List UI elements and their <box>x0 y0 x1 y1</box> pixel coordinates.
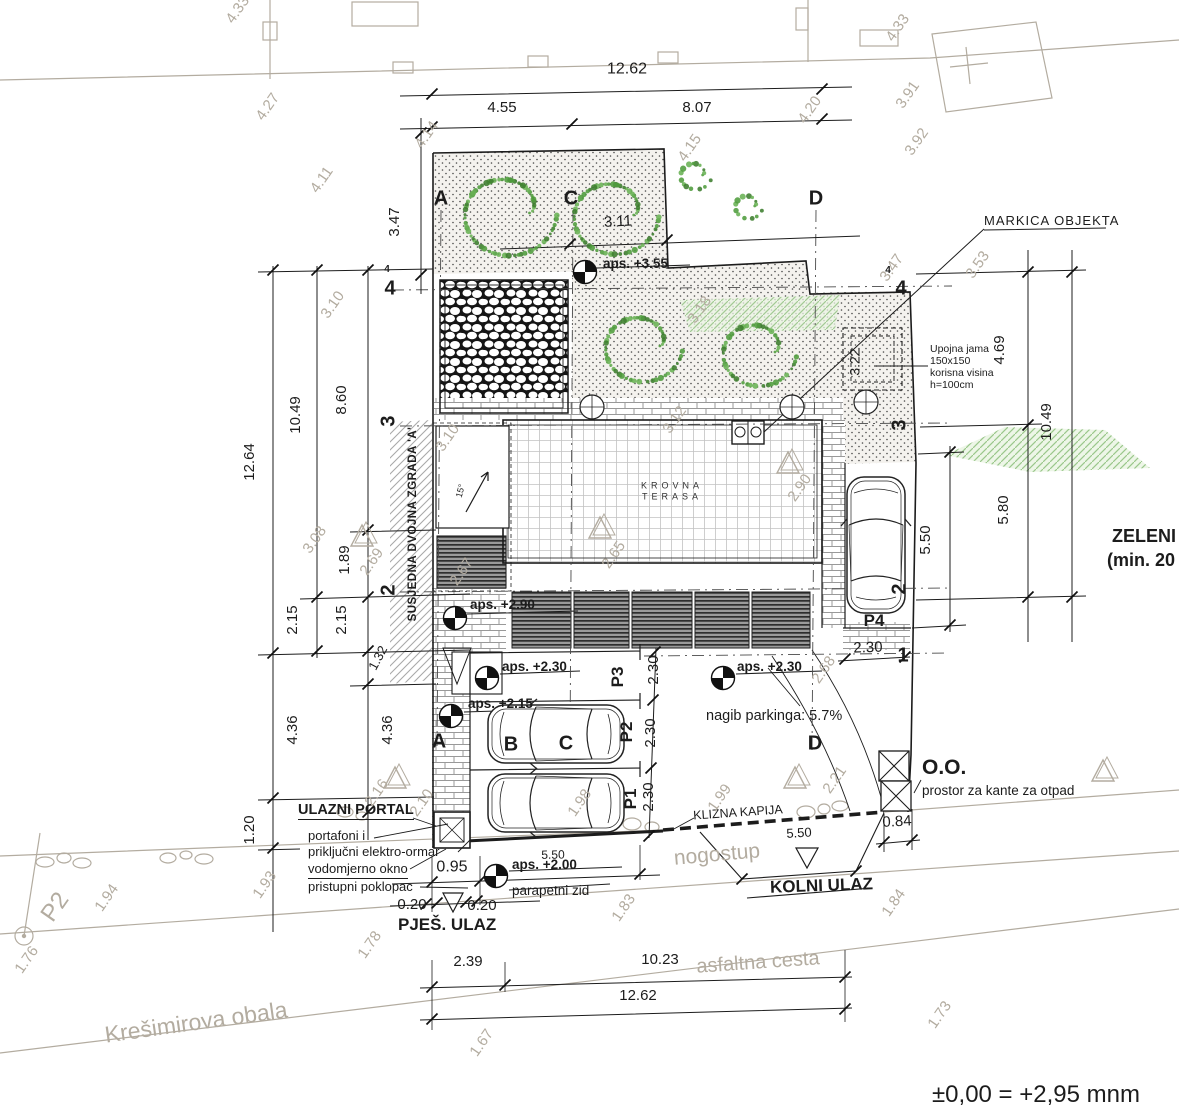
ulazni-portal-label: ULAZNI PORTAL <box>298 802 414 820</box>
zeleni-label: ZELENI <box>1112 526 1176 546</box>
grid-letter-a-top: A <box>434 189 448 210</box>
dimension-label: 10.49 <box>288 396 304 434</box>
manhole-icon <box>780 395 804 419</box>
level-label-230-right: aps. +2.30 <box>737 659 802 674</box>
brick-col-right <box>822 420 845 628</box>
dimension-label: 2.30 <box>853 640 883 657</box>
level-marker-icon <box>444 607 467 630</box>
parapetni-zid-label: parapetni zid <box>512 883 589 898</box>
level-marker-icon <box>574 261 597 284</box>
grid-number-3-right: 3 <box>890 419 911 430</box>
dimension-label: 4.36 <box>285 715 301 744</box>
dimension-label: 8.60 <box>334 385 350 414</box>
upojna-jama-label: 150x150 <box>930 356 970 368</box>
louver-seg <box>695 592 749 648</box>
car-icon <box>488 768 624 838</box>
grid-number-2-right: 2 <box>890 583 911 594</box>
louver-seg <box>752 592 810 648</box>
dimension-label: 3.22 <box>848 348 863 375</box>
grid-letter-b-bottom: B <box>504 735 518 756</box>
dimension-label: 2.15 <box>285 605 301 634</box>
dimension-label: 10.23 <box>641 952 679 968</box>
level-label-290: aps. +2.90 <box>470 597 535 612</box>
dimension-label: 2.15 <box>334 605 350 634</box>
dimension-label: 2.30 <box>641 782 657 811</box>
dimension-label: 0.20 <box>467 898 496 914</box>
krovna-terasa-label: KROVNA <box>641 481 703 490</box>
dimension-label: 0.84 <box>882 813 912 830</box>
site-plan-drawing <box>0 0 1179 1116</box>
dimension-label: 4.36 <box>380 715 396 744</box>
markica-objekta-label: MARKICA OBJEKTA <box>984 214 1119 229</box>
dimension-label: 8.07 <box>682 100 711 116</box>
grid-number-4-left: 4 <box>384 279 395 300</box>
zeleni-label: (min. 20 <box>1107 550 1175 570</box>
dimension-label: 0.20 <box>397 897 426 913</box>
dimension-label: 0.95 <box>436 860 467 877</box>
dimension-label: 2.30 <box>646 655 662 684</box>
grid-number-3-left: 3 <box>379 415 400 426</box>
vodomjerno-label: vodomjerno okno <box>308 862 408 879</box>
grid-number-2-left: 2 <box>379 584 400 595</box>
cobble-area <box>440 280 568 413</box>
dimension-label: 1.20 <box>242 815 258 844</box>
susjedna-zgrada-label: SUSJEDNA DVOJNA ZGRADA 'A' <box>407 427 419 622</box>
prikljucni-label: priključni elektro-ormar <box>308 845 439 860</box>
level-label-355: aps. +3.55 <box>603 256 668 271</box>
oo-subtitle-label: prostor za kante za otpad <box>922 783 1074 798</box>
grid-number-4s-left: 4 <box>384 265 390 276</box>
louver-seg <box>632 592 692 648</box>
louver-seg <box>574 592 629 648</box>
level-marker-icon <box>712 667 735 690</box>
upojna-jama-label: h=100cm <box>930 380 974 392</box>
grid-letter-c-bottom: C <box>559 734 573 755</box>
kolni-ulaz-label: KOLNI ULAZ <box>770 874 874 897</box>
portafoni-label: portafoni i <box>308 829 365 844</box>
parking-p2-label: P2 <box>618 722 636 743</box>
grid-number-1-right: 1 <box>897 646 908 667</box>
dimension-label: 5.50 <box>786 826 812 841</box>
grid-letter-c-top: C <box>564 189 578 210</box>
krovna-terasa-label: TERASA <box>642 492 702 501</box>
dimension-label: 2.30 <box>643 718 659 747</box>
dimension-label: 1.89 <box>337 545 353 574</box>
level-marker-icon <box>485 865 508 888</box>
survey-triangle-icon <box>1092 757 1118 781</box>
dimension-label: 3.11 <box>604 213 633 230</box>
level-label-230-left: aps. +2.30 <box>502 659 567 674</box>
grid-number-4-right: 4 <box>895 279 906 300</box>
level-label-215: aps. +2.15 <box>468 696 533 711</box>
dimension-label: 12.62 <box>619 988 657 1004</box>
brick-portal-top <box>434 790 470 812</box>
level-marker-icon <box>440 705 463 728</box>
upojna-jama-label: korisna visina <box>930 368 994 380</box>
parking-p4-label: P4 <box>864 612 885 630</box>
dimension-label: 4.55 <box>487 100 516 116</box>
dimension-label: 4.69 <box>992 335 1008 364</box>
driveway-triangle <box>796 848 818 868</box>
manhole-icon <box>580 395 604 419</box>
grid-letter-d-top: D <box>809 189 823 210</box>
dimension-label: 12.62 <box>607 62 647 79</box>
pristupni-label: pristupni poklopac <box>308 880 413 895</box>
tree-icon <box>733 193 764 221</box>
nagib-parkinga-label: nagib parkinga: 5.7% <box>706 708 842 724</box>
grid-letter-d-bottom: D <box>808 734 822 755</box>
manhole-icon <box>854 390 878 414</box>
survey-triangle-icon <box>784 764 810 788</box>
tree-icon <box>679 161 713 192</box>
site-plan: MARKICA OBJEKTA Upojna jama 150x150 kori… <box>0 0 1179 1116</box>
pjes-ulaz-label: PJEŠ. ULAZ <box>398 915 496 934</box>
oo-title-label: O.O. <box>922 756 966 780</box>
garden-stipple-right <box>843 291 916 464</box>
dimension-label: 5.50 <box>541 849 565 862</box>
parking-p3-label: P3 <box>609 667 627 688</box>
dimension-label: 12.64 <box>242 443 258 481</box>
dimension-label: 10.49 <box>1039 403 1055 441</box>
dimension-label: 3.47 <box>387 207 403 236</box>
upojna-jama-label: Upojna jama <box>930 344 989 356</box>
dimension-label: 5.80 <box>996 495 1012 524</box>
dimension-label: 5.50 <box>918 525 934 554</box>
benchmark-label: ±0,00 = +2,95 mnm <box>932 1082 1140 1109</box>
level-marker-icon <box>476 667 499 690</box>
dimension-label: 2.39 <box>453 954 482 970</box>
parking-p1-label: P1 <box>622 789 640 810</box>
grid-letter-a-bottom: A <box>432 732 446 753</box>
